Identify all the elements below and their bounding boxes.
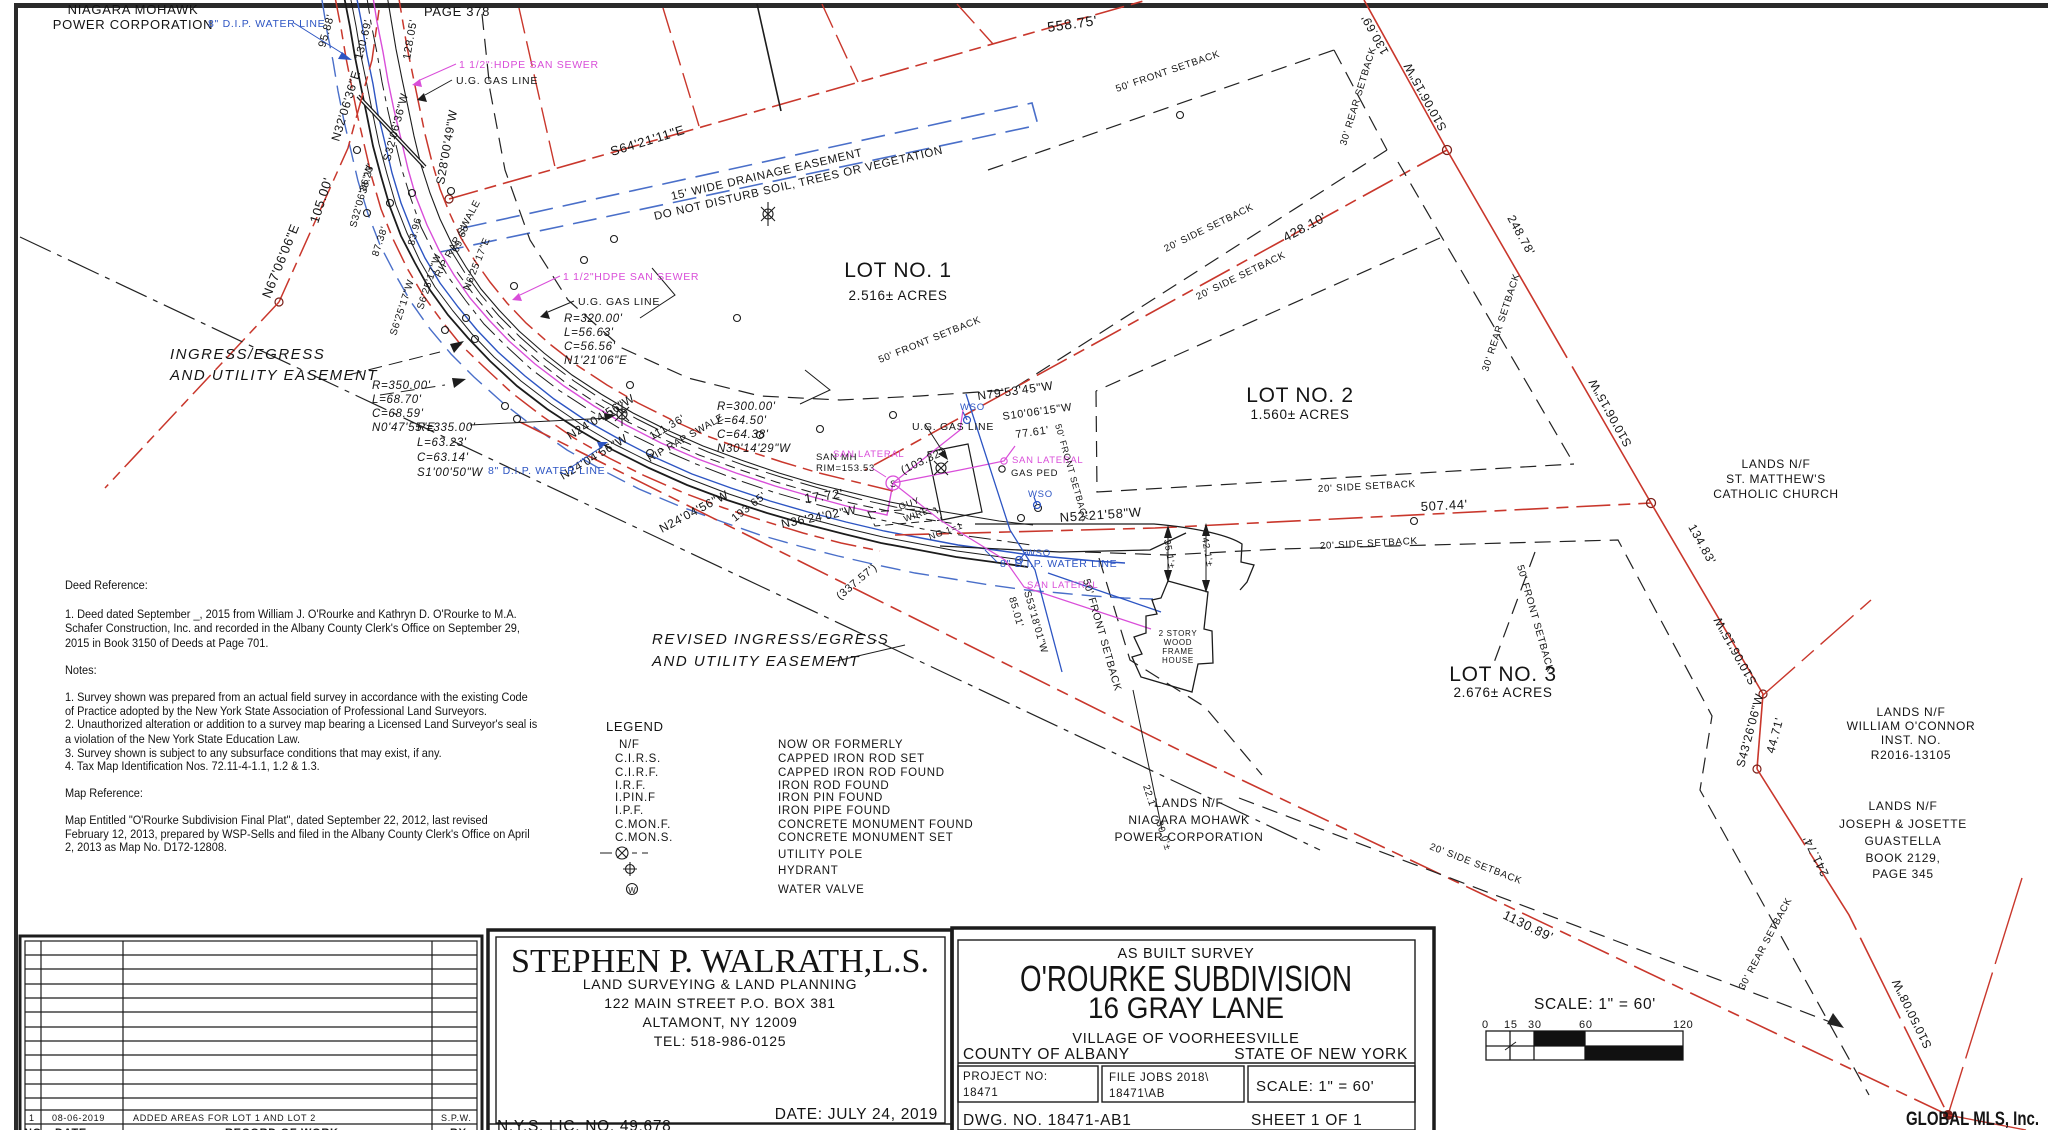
svg-text:2 STORY: 2 STORY bbox=[1159, 629, 1198, 638]
svg-text:LOT NO. 1: LOT NO. 1 bbox=[844, 259, 951, 282]
svg-text:SCALE: 1" = 60': SCALE: 1" = 60' bbox=[1256, 1078, 1374, 1095]
svg-text:ADDED AREAS FOR LOT 1 AND LOT: ADDED AREAS FOR LOT 1 AND LOT 2 bbox=[133, 1113, 316, 1123]
svg-text:4. Tax Map Identification Nos.: 4. Tax Map Identification Nos. 72.11-4-1… bbox=[65, 761, 320, 773]
svg-text:C.MON.S.: C.MON.S. bbox=[615, 832, 673, 844]
svg-text:INST. NO.: INST. NO. bbox=[1881, 733, 1941, 747]
svg-text:1 1/2"HDPE SAN SEWER: 1 1/2"HDPE SAN SEWER bbox=[563, 271, 699, 283]
svg-text:AND UTILITY EASEMENT: AND UTILITY EASEMENT bbox=[169, 367, 378, 384]
svg-text:WSO: WSO bbox=[1026, 548, 1051, 559]
svg-text:COUNTY OF ALBANY: COUNTY OF ALBANY bbox=[963, 1046, 1130, 1063]
svg-text:IRON PIPE FOUND: IRON PIPE FOUND bbox=[778, 805, 891, 817]
svg-text:HOUSE: HOUSE bbox=[1162, 656, 1194, 665]
svg-text:SHEET 1 OF 1: SHEET 1 OF 1 bbox=[1251, 1112, 1362, 1129]
svg-text:2.676± ACRES: 2.676± ACRES bbox=[1453, 685, 1552, 700]
svg-text:GLOBAL MLS, Inc.: GLOBAL MLS, Inc. bbox=[1906, 1109, 2039, 1130]
svg-text:CONCRETE MONUMENT SET: CONCRETE MONUMENT SET bbox=[778, 832, 954, 844]
svg-text:VILLAGE OF VOORHEESVILLE: VILLAGE OF VOORHEESVILLE bbox=[1072, 1031, 1299, 1047]
svg-text:1.560± ACRES: 1.560± ACRES bbox=[1250, 407, 1349, 422]
svg-text:18471: 18471 bbox=[963, 1087, 998, 1099]
svg-text:U.G. GAS LINE: U.G. GAS LINE bbox=[912, 421, 994, 433]
svg-text:8" D.I.P. WATER LINE: 8" D.I.P. WATER LINE bbox=[208, 18, 325, 30]
svg-text:1: 1 bbox=[29, 1113, 35, 1123]
svg-text:2015 in Book 3150 of Deeds at: 2015 in Book 3150 of Deeds at Page 701. bbox=[65, 638, 268, 650]
svg-text:GAS PED: GAS PED bbox=[1011, 468, 1058, 479]
svg-text:1 1/2":HDPE SAN SEWER: 1 1/2":HDPE SAN SEWER bbox=[459, 59, 599, 71]
svg-text:0: 0 bbox=[1482, 1019, 1489, 1031]
svg-text:N.Y.S. LIC. NO. 49,678: N.Y.S. LIC. NO. 49,678 bbox=[497, 1118, 672, 1130]
svg-text:NOW OR FORMERLY: NOW OR FORMERLY bbox=[778, 739, 903, 751]
svg-text:TEL: 518-986-0125: TEL: 518-986-0125 bbox=[654, 1033, 787, 1049]
svg-text:STEPHEN P. WALRATH,L.S.: STEPHEN P. WALRATH,L.S. bbox=[511, 943, 929, 980]
svg-text:FILE JOBS 2018\: FILE JOBS 2018\ bbox=[1109, 1072, 1209, 1084]
svg-text:I.P.F.: I.P.F. bbox=[615, 805, 644, 817]
svg-text:C=56.56': C=56.56' bbox=[564, 341, 616, 353]
svg-text:30: 30 bbox=[1528, 1019, 1542, 1031]
svg-text:PROJECT NO:: PROJECT NO: bbox=[963, 1071, 1048, 1083]
svg-text:NIAGARA MOHAWK: NIAGARA MOHAWK bbox=[1128, 813, 1249, 827]
svg-text:IRON PIN FOUND: IRON PIN FOUND bbox=[778, 792, 883, 804]
svg-text:C.MON.F.: C.MON.F. bbox=[615, 819, 671, 831]
svg-text:WILLIAM O'CONNOR: WILLIAM O'CONNOR bbox=[1847, 719, 1976, 733]
svg-text:SCALE: 1" = 60': SCALE: 1" = 60' bbox=[1534, 996, 1656, 1013]
svg-text:I.R.F.: I.R.F. bbox=[615, 780, 646, 792]
svg-text:C=64.38': C=64.38' bbox=[717, 429, 769, 441]
svg-text:CAPPED IRON ROD FOUND: CAPPED IRON ROD FOUND bbox=[778, 767, 945, 779]
svg-text:DWG. NO. 18471-AB1: DWG. NO. 18471-AB1 bbox=[963, 1112, 1132, 1129]
svg-text:REVISED INGRESS/EGRESS: REVISED INGRESS/EGRESS bbox=[652, 631, 889, 648]
svg-text:1. Deed dated September _, 201: 1. Deed dated September _, 2015 from Wil… bbox=[65, 609, 517, 621]
svg-text:S1'00'50"W: S1'00'50"W bbox=[417, 467, 483, 479]
svg-text:8" D.I.P. WATER LINE: 8" D.I.P. WATER LINE bbox=[488, 465, 605, 477]
svg-text:LOT NO. 2: LOT NO. 2 bbox=[1246, 384, 1353, 407]
svg-text:POWER CORPORATION: POWER CORPORATION bbox=[1114, 830, 1263, 844]
svg-text:WSO: WSO bbox=[1028, 489, 1053, 500]
svg-text:U.G. GAS LINE: U.G. GAS LINE bbox=[456, 75, 538, 87]
svg-text:SAN LATERAL: SAN LATERAL bbox=[833, 449, 904, 460]
svg-text:IRON ROD FOUND: IRON ROD FOUND bbox=[778, 780, 889, 792]
svg-text:N/F: N/F bbox=[619, 739, 640, 751]
svg-text:a violation of the New York St: a violation of the New York State Educat… bbox=[65, 734, 300, 746]
svg-text:WATER VALVE: WATER VALVE bbox=[778, 884, 865, 896]
svg-text:AND UTILITY EASEMENT: AND UTILITY EASEMENT bbox=[651, 653, 860, 670]
svg-text:2. Unauthorized alteration or: 2. Unauthorized alteration or addition t… bbox=[65, 719, 538, 731]
svg-text:LAND SURVEYING & LAND PLANNING: LAND SURVEYING & LAND PLANNING bbox=[583, 976, 857, 992]
svg-text:2.516± ACRES: 2.516± ACRES bbox=[848, 288, 947, 303]
svg-text:122 MAIN STREET P.O. BOX 381: 122 MAIN STREET P.O. BOX 381 bbox=[604, 995, 836, 1011]
svg-text:W: W bbox=[628, 886, 636, 895]
svg-text:POWER CORPORATION: POWER CORPORATION bbox=[53, 17, 213, 32]
svg-text:U.G. GAS LINE: U.G. GAS LINE bbox=[578, 296, 660, 308]
svg-text:1. Survey shown was prepared f: 1. Survey shown was prepared from an act… bbox=[65, 692, 528, 704]
svg-text:LANDS N/F: LANDS N/F bbox=[1869, 799, 1938, 813]
svg-text:LANDS N/F: LANDS N/F bbox=[1742, 457, 1811, 471]
svg-text:ST. MATTHEW'S: ST. MATTHEW'S bbox=[1726, 472, 1826, 486]
svg-text:S.P.W.: S.P.W. bbox=[441, 1113, 472, 1123]
svg-text:HYDRANT: HYDRANT bbox=[778, 865, 839, 877]
svg-text:C=63.14': C=63.14' bbox=[417, 452, 469, 464]
svg-text:INGRESS/EGRESS: INGRESS/EGRESS bbox=[170, 346, 325, 363]
svg-text:WSO: WSO bbox=[960, 402, 985, 413]
svg-text:R=335.00': R=335.00' bbox=[417, 422, 476, 434]
svg-text:LOT NO. 3: LOT NO. 3 bbox=[1449, 663, 1556, 686]
svg-text:LEGEND: LEGEND bbox=[606, 719, 664, 734]
svg-text:LANDS N/F: LANDS N/F bbox=[1877, 705, 1946, 719]
svg-text:R=300.00': R=300.00' bbox=[717, 401, 776, 413]
svg-text:Map Entitled "O'Rourke Subdivi: Map Entitled "O'Rourke Subdivision Final… bbox=[65, 815, 488, 827]
svg-text:8" D.I.P. WATER LINE: 8" D.I.P. WATER LINE bbox=[1000, 558, 1117, 570]
svg-text:16 GRAY LANE: 16 GRAY LANE bbox=[1088, 992, 1284, 1025]
svg-text:R=350.00': R=350.00' bbox=[372, 380, 431, 392]
svg-text:STATE OF NEW YORK: STATE OF NEW YORK bbox=[1234, 1046, 1408, 1063]
svg-text:60: 60 bbox=[1579, 1019, 1593, 1031]
svg-text:NIAGARA MOHAWK: NIAGARA MOHAWK bbox=[68, 2, 199, 17]
svg-text:Schafer Construction, Inc. and: Schafer Construction, Inc. and recorded … bbox=[65, 623, 520, 635]
svg-text:UTILITY POLE: UTILITY POLE bbox=[778, 849, 863, 861]
svg-text:GUASTELLA: GUASTELLA bbox=[1865, 834, 1942, 848]
svg-text:JOSEPH & JOSETTE: JOSEPH & JOSETTE bbox=[1839, 817, 1967, 831]
svg-text:Map Reference:: Map Reference: bbox=[65, 788, 143, 800]
svg-text:CAPPED IRON ROD SET: CAPPED IRON ROD SET bbox=[778, 753, 925, 765]
svg-text:18471\AB: 18471\AB bbox=[1109, 1088, 1165, 1100]
svg-text:I.PIN.F: I.PIN.F bbox=[615, 792, 656, 804]
svg-text:L=63.23': L=63.23' bbox=[417, 437, 467, 449]
svg-text:L=56.63': L=56.63' bbox=[564, 327, 614, 339]
svg-text:507.44': 507.44' bbox=[1420, 497, 1468, 514]
svg-text:N1'21'06"E: N1'21'06"E bbox=[564, 355, 627, 367]
svg-text:C=68.59': C=68.59' bbox=[372, 408, 424, 420]
svg-text:15: 15 bbox=[1504, 1019, 1518, 1031]
svg-text:2, 2013 as Map No. D172-12808.: 2, 2013 as Map No. D172-12808. bbox=[65, 842, 227, 854]
svg-text:CATHOLIC CHURCH: CATHOLIC CHURCH bbox=[1713, 487, 1839, 501]
svg-text:BOOK 2129,: BOOK 2129, bbox=[1865, 851, 1940, 865]
svg-text:C.I.R.S.: C.I.R.S. bbox=[615, 753, 661, 765]
svg-text:RIM=153.53: RIM=153.53 bbox=[816, 463, 875, 474]
svg-text:08-06-2019: 08-06-2019 bbox=[52, 1113, 105, 1123]
svg-text:L=68.70': L=68.70' bbox=[372, 394, 422, 406]
svg-text:L=64.50': L=64.50' bbox=[717, 415, 767, 427]
svg-text:WOOD: WOOD bbox=[1164, 638, 1193, 647]
svg-text:R2016-13105: R2016-13105 bbox=[1871, 748, 1951, 762]
svg-text:C.I.R.F.: C.I.R.F. bbox=[615, 767, 659, 779]
svg-text:N30'14'29"W: N30'14'29"W bbox=[717, 443, 791, 455]
svg-text:120: 120 bbox=[1673, 1019, 1693, 1031]
svg-text:of Practice adopted by the New: of Practice adopted by the New York Stat… bbox=[65, 706, 487, 718]
svg-text:Notes:: Notes: bbox=[65, 665, 97, 677]
svg-text:PAGE 378: PAGE 378 bbox=[424, 4, 490, 19]
svg-text:Deed Reference:: Deed Reference: bbox=[65, 580, 148, 592]
svg-text:DATE: JULY 24, 2019: DATE: JULY 24, 2019 bbox=[775, 1106, 938, 1123]
svg-text:PAGE 345: PAGE 345 bbox=[1872, 867, 1933, 881]
svg-text:ALTAMONT, NY 12009: ALTAMONT, NY 12009 bbox=[643, 1014, 798, 1030]
svg-text:February 12, 2013, prepared by: February 12, 2013, prepared by WSP-Sells… bbox=[65, 829, 530, 841]
svg-text:CONCRETE MONUMENT FOUND: CONCRETE MONUMENT FOUND bbox=[778, 819, 973, 831]
svg-text:R=320.00': R=320.00' bbox=[564, 313, 623, 325]
svg-text:3. Survey shown is subject to: 3. Survey shown is subject to any subsur… bbox=[65, 748, 442, 760]
svg-text:LANDS N/F: LANDS N/F bbox=[1155, 796, 1224, 810]
svg-text:FRAME: FRAME bbox=[1162, 647, 1194, 656]
